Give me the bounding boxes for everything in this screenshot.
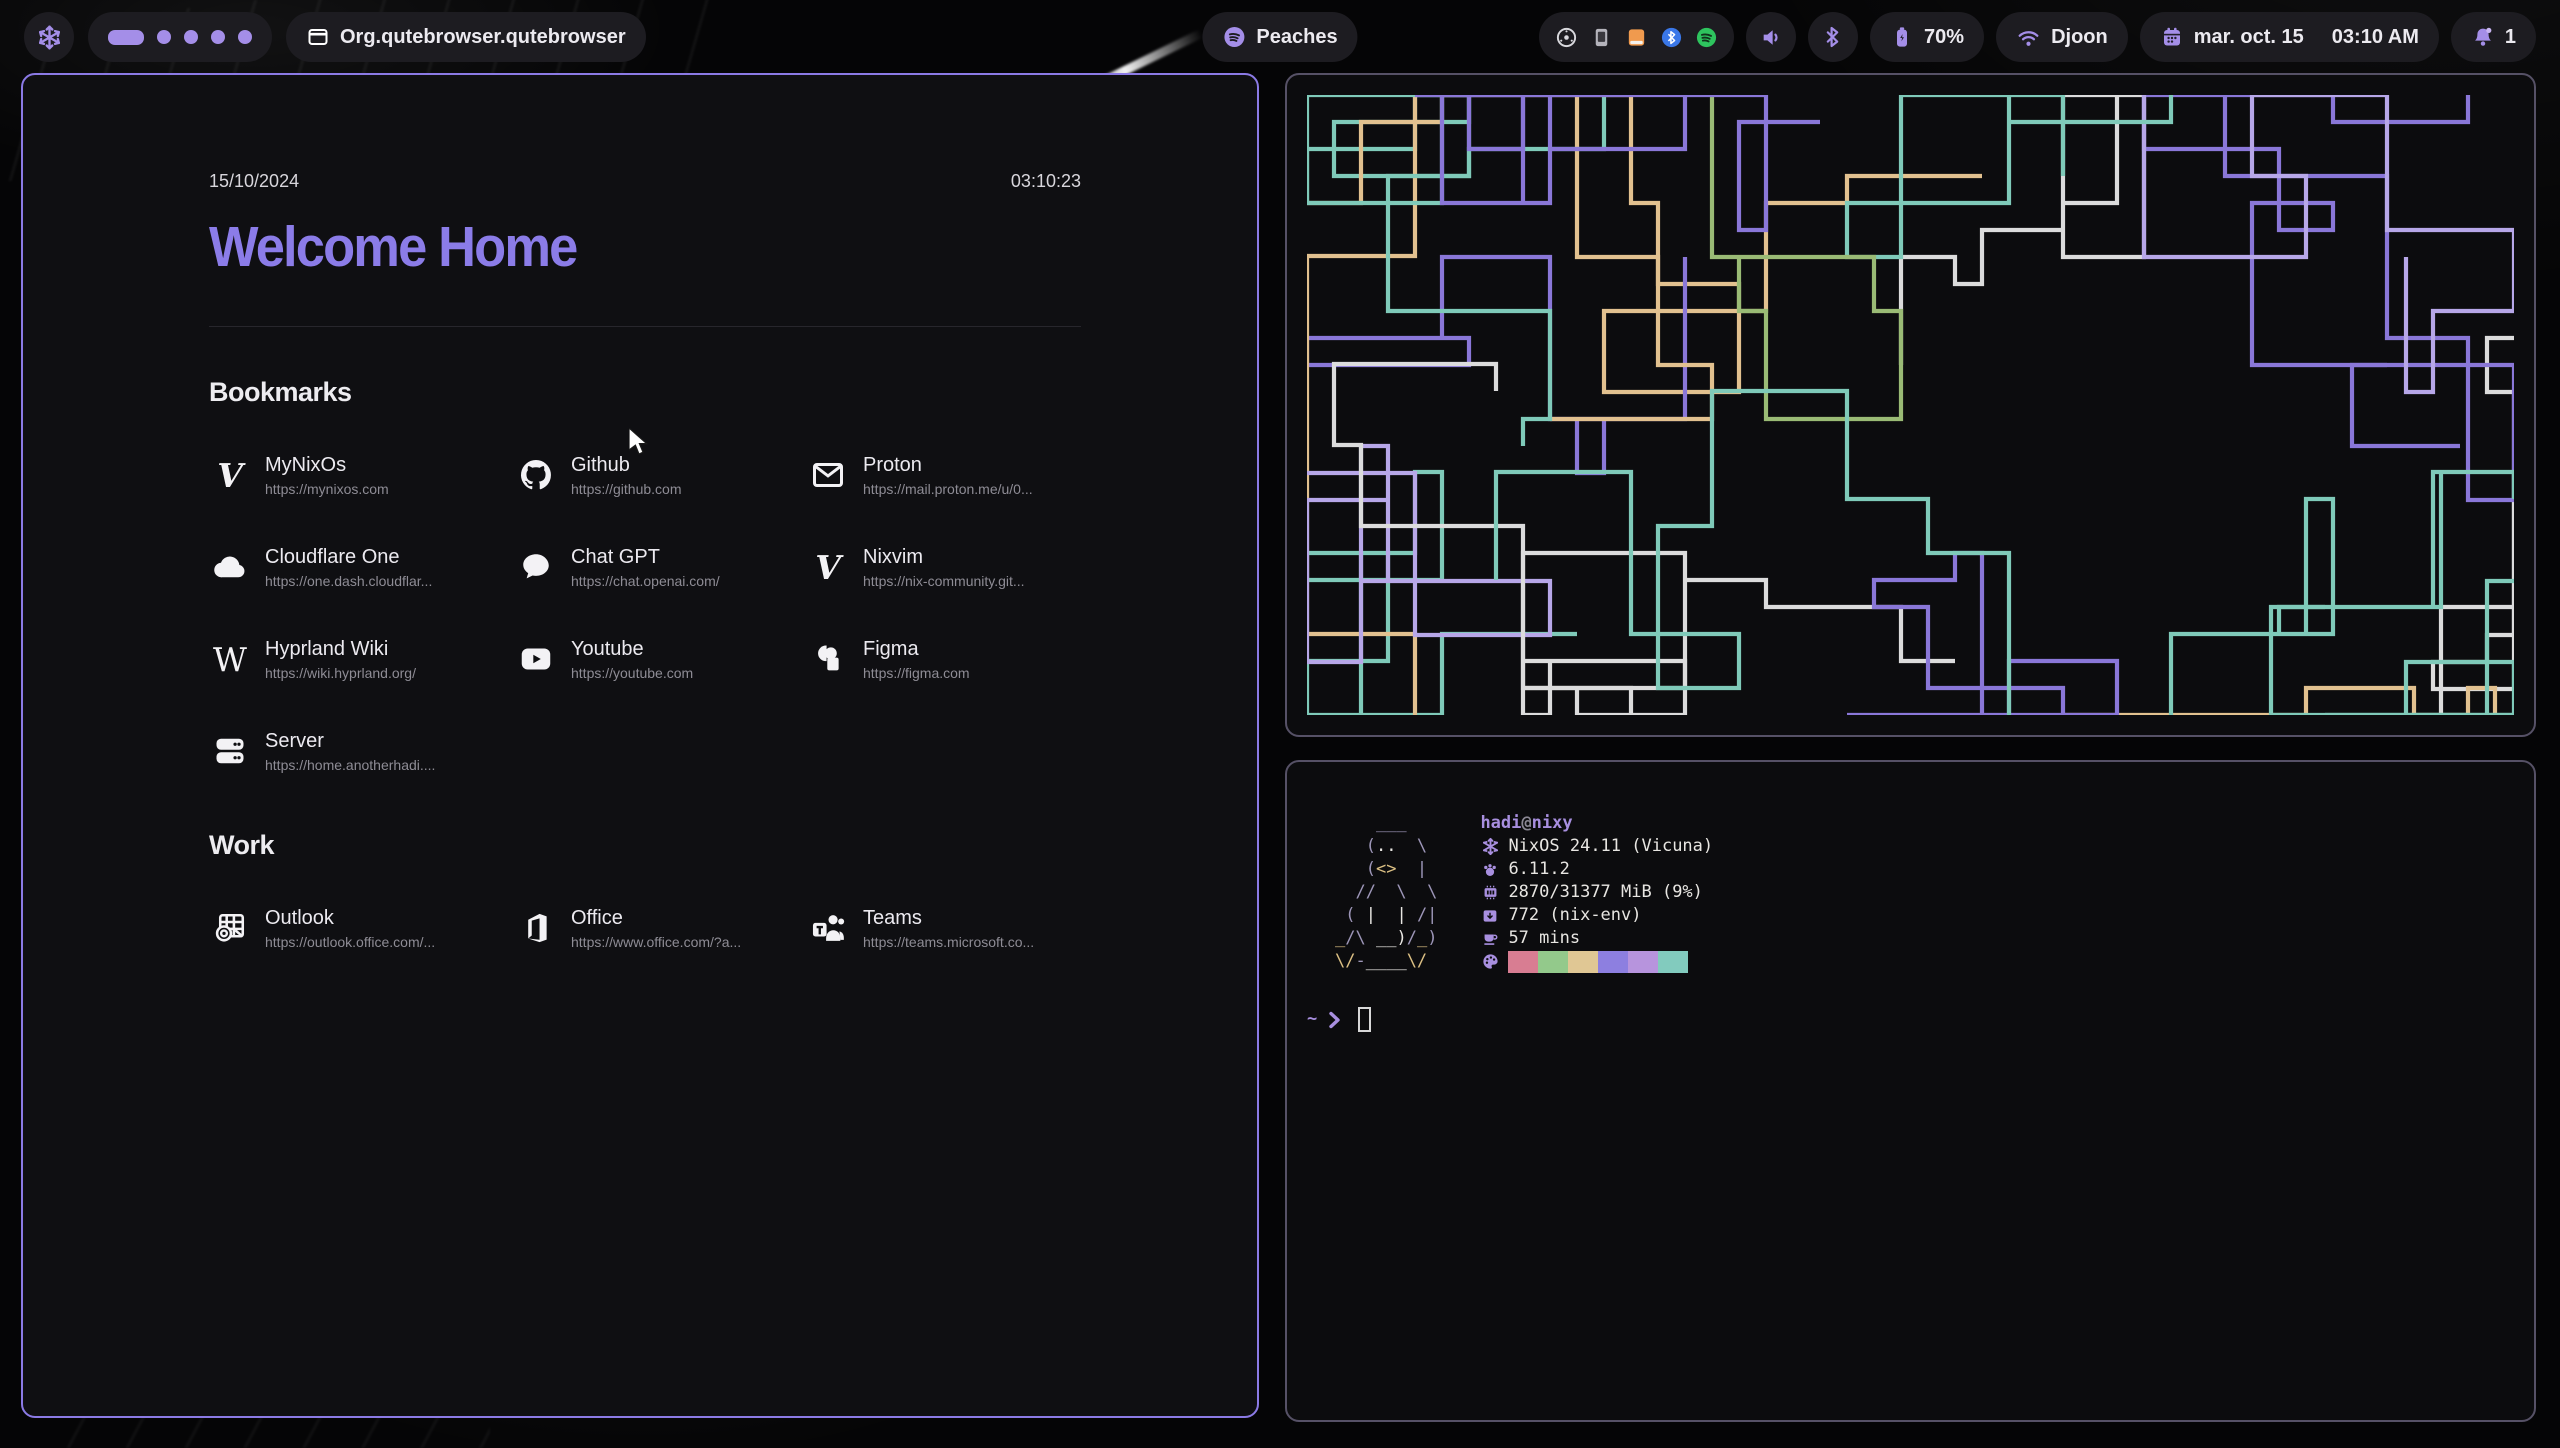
bookmark-name: Youtube [571, 638, 693, 661]
workspace-dot-4[interactable] [211, 30, 225, 44]
bookmark-item[interactable]: Serverhttps://home.anotherhadi.... [209, 722, 515, 780]
fastfetch-value: NixOS 24.11 (Vicuna) [1508, 835, 1713, 858]
bookmark-url: https://one.dash.cloudflar... [265, 573, 432, 589]
fastfetch-user-host: hadi@nixy [1480, 812, 1713, 835]
fastfetch-colors-row [1480, 950, 1713, 973]
tray-bluetooth-icon[interactable] [1660, 26, 1683, 49]
palette-swatch [1658, 951, 1688, 973]
bookmark-name: Hyprland Wiki [265, 638, 416, 661]
bluetooth-pill[interactable] [1808, 12, 1858, 62]
figma-icon [807, 635, 849, 683]
bookmark-name: Proton [863, 454, 1033, 477]
battery-icon [1890, 25, 1914, 49]
pipes-art [1307, 95, 2514, 715]
section-title: Work [209, 830, 1081, 861]
bookmark-url: https://teams.microsoft.co... [863, 934, 1034, 950]
palette-swatch [1598, 951, 1628, 973]
date-text: mar. oct. 15 [2194, 26, 2304, 49]
mail-icon [807, 451, 849, 499]
bookmark-name: Teams [863, 907, 1034, 930]
bookmark-item[interactable]: Teamshttps://teams.microsoft.co... [807, 899, 1083, 957]
bookmark-name: Outlook [265, 907, 435, 930]
shell-prompt[interactable]: ~ [1307, 1007, 2514, 1032]
fastfetch-row: 57 mins [1480, 927, 1713, 950]
terminal-color-palette [1508, 950, 1688, 973]
calendar-icon [2160, 25, 2184, 49]
tray-orange-app-icon[interactable] [1625, 26, 1648, 49]
workspace-dot-3[interactable] [184, 30, 198, 44]
bookmark-item[interactable]: Cloudflare Onehttps://one.dash.cloudflar… [209, 538, 515, 596]
workspace-dot-2[interactable] [157, 30, 171, 44]
tray-disc-icon[interactable] [1555, 26, 1578, 49]
bookmark-name: Figma [863, 638, 970, 661]
workspace-dot-1[interactable] [108, 30, 144, 45]
bookmark-item[interactable]: Outlookhttps://outlook.office.com/... [209, 899, 515, 957]
bookmark-name: Github [571, 454, 682, 477]
bookmark-url: https://wiki.hyprland.org/ [265, 665, 416, 681]
active-window-pill[interactable]: Org.qutebrowser.qutebrowser [286, 12, 646, 62]
bookmark-url: https://github.com [571, 481, 682, 497]
startpage-clock: 03:10:23 [1011, 171, 1081, 192]
bookmark-item[interactable]: Officehttps://www.office.com/?a... [515, 899, 807, 957]
github-icon [515, 451, 557, 499]
now-playing-pill[interactable]: Peaches [1202, 12, 1357, 62]
network-pill[interactable]: Djoon [1996, 12, 2128, 62]
bookmark-item[interactable]: Chat GPThttps://chat.openai.com/ [515, 538, 807, 596]
palette-swatch [1628, 951, 1658, 973]
prompt-chevron-icon [1328, 1009, 1341, 1031]
fastfetch-output: ___ (.. \ (<> | // \ \ ( | | /|_/\ __)/_… [1307, 812, 2514, 973]
bookmark-name: Server [265, 730, 435, 753]
bookmark-url: https://home.anotherhadi.... [265, 757, 435, 773]
kernel-icon [1480, 861, 1500, 879]
fastfetch-row: 6.11.2 [1480, 858, 1713, 881]
pipes-screensaver [1287, 75, 2534, 735]
battery-pill[interactable]: 70% [1870, 12, 1984, 62]
bookmark-name: Office [571, 907, 741, 930]
prompt-path: ~ [1307, 1008, 1317, 1031]
bookmark-item[interactable]: Githubhttps://github.com [515, 446, 807, 504]
bookmark-item[interactable]: WHyprland Wikihttps://wiki.hyprland.org/ [209, 630, 515, 688]
notification-count: 1 [2505, 26, 2516, 49]
wikipedia-icon: W [209, 635, 251, 683]
server-icon [209, 727, 251, 775]
terminal-window-fastfetch[interactable]: ___ (.. \ (<> | // \ \ ( | | /|_/\ __)/_… [1285, 760, 2536, 1422]
tray-device-icon[interactable] [1590, 26, 1613, 49]
bookmark-url: https://www.office.com/?a... [571, 934, 741, 950]
divider [209, 326, 1081, 327]
fastfetch-value: 6.11.2 [1508, 858, 1569, 881]
palette-icon [1480, 952, 1500, 971]
terminal-window-pipes[interactable] [1285, 73, 2536, 737]
bookmark-item[interactable]: VMyNixOshttps://mynixos.com [209, 446, 515, 504]
system-tray [1539, 12, 1734, 62]
bookmark-item[interactable]: Figmahttps://figma.com [807, 630, 1083, 688]
window-icon [306, 25, 330, 49]
spotify-icon [1222, 25, 1246, 49]
letter-v-icon: V [807, 543, 849, 591]
youtube-icon [515, 635, 557, 683]
browser-window-startpage: 15/10/2024 03:10:23 Welcome Home Bookmar… [21, 73, 1259, 1418]
outlook-icon [209, 904, 251, 952]
bookmark-name: MyNixOs [265, 454, 389, 477]
volume-pill[interactable] [1746, 12, 1796, 62]
now-playing-title: Peaches [1256, 26, 1337, 49]
palette-swatch [1568, 951, 1598, 973]
chat-bubble-icon [515, 543, 557, 591]
fastfetch-row: 2870/31377 MiB (9%) [1480, 881, 1713, 904]
tray-spotify-icon[interactable] [1695, 26, 1718, 49]
bookmark-url: https://mail.proton.me/u/0... [863, 481, 1033, 497]
packages-icon [1480, 907, 1500, 925]
palette-swatch [1508, 951, 1538, 973]
bookmark-url: https://outlook.office.com/... [265, 934, 435, 950]
bookmark-name: Chat GPT [571, 546, 720, 569]
speaker-icon [1759, 25, 1784, 50]
bookmark-url: https://mynixos.com [265, 481, 389, 497]
nix-snowflake-icon [36, 24, 63, 51]
nix-logo-button[interactable] [24, 12, 74, 62]
bookmark-item[interactable]: Youtubehttps://youtube.com [515, 630, 807, 688]
startpage-date: 15/10/2024 [209, 171, 299, 192]
startpage-header: 15/10/2024 03:10:23 [209, 171, 1081, 192]
bookmark-url: https://youtube.com [571, 665, 693, 681]
teams-icon [807, 904, 849, 952]
bell-icon [2471, 25, 2495, 49]
uptime-icon [1480, 929, 1500, 948]
active-window-title: Org.qutebrowser.qutebrowser [340, 26, 626, 49]
bookmark-grid: Outlookhttps://outlook.office.com/...Off… [209, 899, 1081, 957]
memory-icon [1480, 883, 1500, 902]
nixos-icon [1480, 837, 1500, 856]
fastfetch-value: 2870/31377 MiB (9%) [1508, 881, 1702, 904]
bookmark-grid: VMyNixOshttps://mynixos.comGithubhttps:/… [209, 446, 1081, 780]
nix-snowflake-icon: V [209, 451, 251, 499]
fastfetch-row: 772 (nix-env) [1480, 904, 1713, 927]
network-name: Djoon [2051, 26, 2108, 49]
fastfetch-value: 772 (nix-env) [1508, 904, 1641, 927]
terminal-cursor [1358, 1007, 1371, 1032]
cloud-icon [209, 543, 251, 591]
bookmark-name: Cloudflare One [265, 546, 432, 569]
notifications-pill[interactable]: 1 [2451, 12, 2536, 62]
fastfetch-row: NixOS 24.11 (Vicuna) [1480, 835, 1713, 858]
wifi-icon [2016, 25, 2041, 50]
status-bar: Org.qutebrowser.qutebrowser Peaches 70% [0, 12, 2560, 62]
clock-pill[interactable]: mar. oct. 15 03:10 AM [2140, 12, 2439, 62]
page-title: Welcome Home [209, 214, 1011, 280]
tux-ascii-art: ___ (.. \ (<> | // \ \ ( | | /|_/\ __)/_… [1335, 812, 1437, 973]
workspace-dot-5[interactable] [238, 30, 252, 44]
bluetooth-icon [1821, 25, 1845, 49]
bookmark-url: https://figma.com [863, 665, 970, 681]
battery-percent: 70% [1924, 26, 1964, 49]
bookmark-name: Nixvim [863, 546, 1025, 569]
bookmark-item[interactable]: VNixvimhttps://nix-community.git... [807, 538, 1083, 596]
workspace-indicator[interactable] [88, 12, 272, 62]
palette-swatch [1538, 951, 1568, 973]
fastfetch-value: 57 mins [1508, 927, 1580, 950]
office-icon [515, 904, 557, 952]
mouse-cursor [629, 428, 655, 456]
section-title: Bookmarks [209, 377, 1081, 408]
bookmark-url: https://nix-community.git... [863, 573, 1025, 589]
bookmark-item[interactable]: Protonhttps://mail.proton.me/u/0... [807, 446, 1083, 504]
bookmark-url: https://chat.openai.com/ [571, 573, 720, 589]
time-text: 03:10 AM [2332, 26, 2419, 49]
